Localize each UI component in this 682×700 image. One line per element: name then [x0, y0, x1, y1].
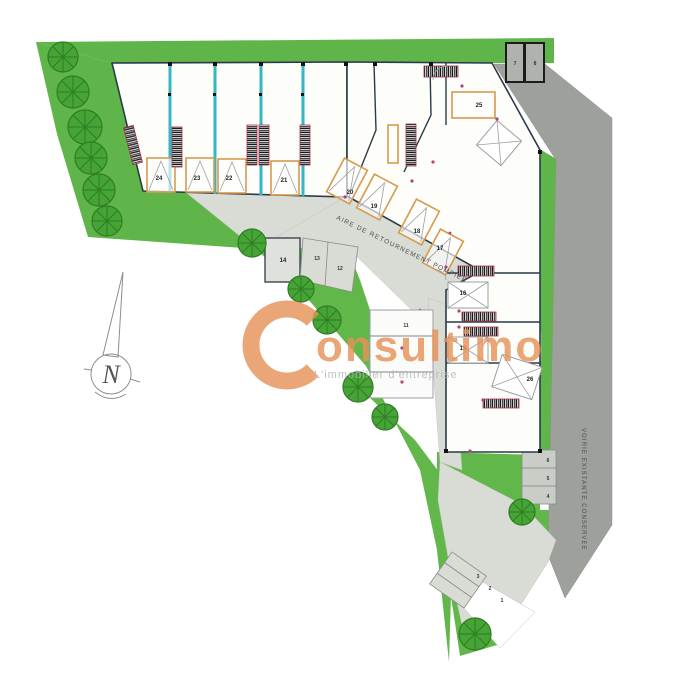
unit-label: 7: [514, 61, 517, 67]
orange-strip: [388, 125, 398, 163]
watermark-tagline: L'immobilier d'entreprise: [314, 369, 458, 381]
watermark-logo-c: [251, 309, 323, 381]
tree: [83, 174, 115, 206]
parking-space-label: 4: [547, 494, 550, 500]
unit-label: 24: [156, 176, 163, 182]
tree: [288, 276, 314, 302]
unit-label: 12: [337, 266, 343, 272]
unit-25-zone: [452, 92, 495, 118]
north-label: N: [101, 360, 121, 389]
road-label-voirie: VOIRIE EXISTANTE CONSERVEE: [580, 428, 586, 551]
tree: [238, 229, 266, 257]
north-arrow: N: [84, 272, 140, 399]
unit-label: 25: [476, 103, 483, 109]
tree: [48, 42, 78, 72]
unit-label: 21: [281, 178, 288, 184]
unit-label: 14: [280, 258, 287, 264]
tree: [68, 110, 102, 144]
unit-label: 18: [414, 229, 421, 235]
site-plan-drawing: 3 2 1 6 5 4 2: [0, 0, 682, 700]
watermark-name: onsultimo: [316, 322, 544, 371]
unit-label: 17: [437, 246, 444, 252]
site-plan: 3 2 1 6 5 4 2: [0, 0, 682, 700]
unit-label: 20: [347, 190, 354, 196]
tree: [372, 404, 398, 430]
parking-space-label: 3: [477, 574, 480, 580]
tree: [509, 499, 535, 525]
garage-door: [147, 158, 299, 195]
tree: [57, 76, 89, 108]
parking-space-label: 6: [547, 458, 550, 464]
parking-space-label: 2: [489, 586, 492, 592]
units-7-8: 7 8: [506, 43, 544, 82]
parking-right: 6 5 4: [522, 450, 556, 504]
unit-label: 16: [460, 291, 467, 297]
unit-label: 13: [314, 256, 320, 262]
unit-label: 23: [194, 176, 201, 182]
tree: [459, 618, 491, 650]
building-top-left: 24 23 22 21: [112, 62, 347, 197]
unit-label: 26: [527, 377, 534, 383]
tree: [75, 142, 107, 174]
unit-label: 22: [226, 176, 233, 182]
tree: [92, 206, 122, 236]
parking-space-label: 1: [501, 598, 504, 604]
unit-label: 8: [534, 61, 537, 67]
parking-space-label: 5: [547, 476, 550, 482]
unit-label: 19: [371, 204, 378, 210]
